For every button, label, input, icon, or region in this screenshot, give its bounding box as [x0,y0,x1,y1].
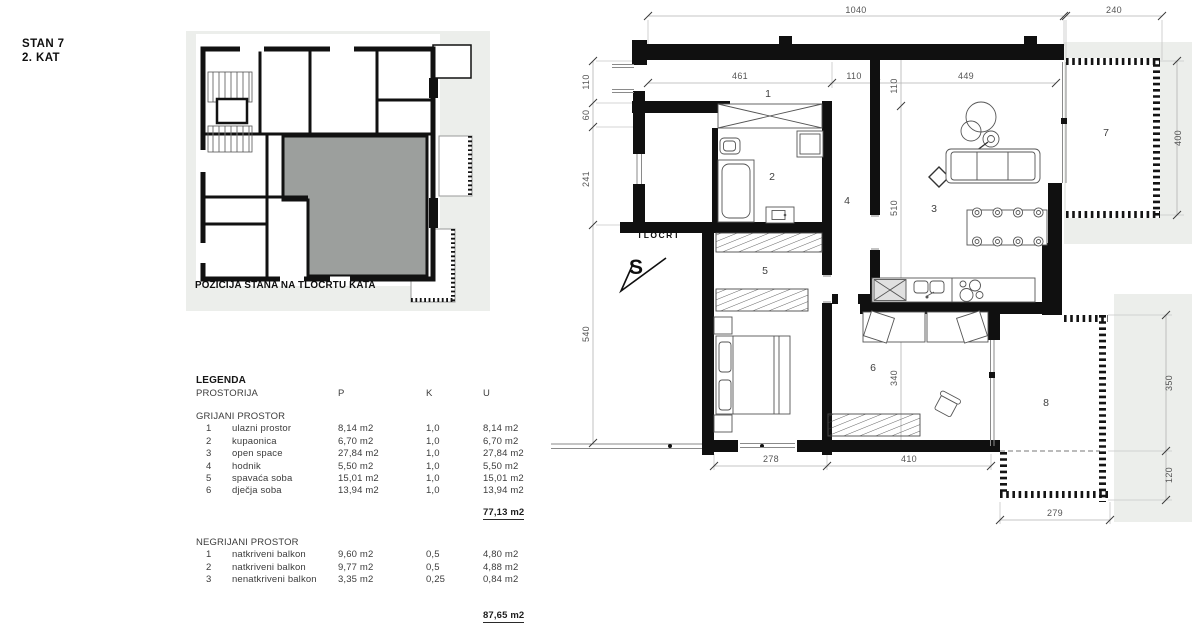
room-label-5: 5 [762,265,768,277]
dim-inner-left: 461 [732,71,748,81]
legend: LEGENDA PROSTORIJA P K U GRIJANI PROSTOR… [196,374,540,623]
kids-room-chair [933,390,962,418]
sofa [946,149,1040,183]
heated-section-title: GRIJANI PROSTOR [196,411,540,423]
mini-elevator [217,99,247,123]
apartment-title-line2: 2. KAT [22,52,64,66]
room-label-3: 3 [931,203,937,215]
dim-entry-height: 110 [889,78,899,93]
double-bed [714,317,790,432]
north-arrow [621,258,666,291]
dim-balcony8-h2: 120 [1164,467,1174,483]
dim-top-main: 1040 [845,5,866,15]
legend-row: 2 natkriveni balkon 9,77 m2 0,5 4,88 m2 [196,562,540,574]
legend-row: 3 open space 27,84 m2 1,0 27,84 m2 [196,448,540,460]
kids-room-beds [863,311,988,343]
wardrobe-hatch-corridor [716,233,822,252]
col-header-room: PROSTORIJA [196,387,338,400]
position-mini-plan [180,25,500,315]
unheated-section-title: NEGRIJANI PROSTOR [196,537,540,549]
legend-row: 1 natkriveni balkon 9,60 m2 0,5 4,80 m2 [196,549,540,561]
entry-closet [718,104,822,128]
room-label-8: 8 [1043,397,1049,409]
dim-left-3: 241 [581,171,591,187]
dim-balcony8-h1: 350 [1164,375,1174,391]
dim-left-2: 60 [581,110,591,121]
apartment-title: STAN 7 2. KAT [22,38,64,65]
room-label-1: 1 [765,88,771,100]
toilet [720,138,740,154]
room-label-4: 4 [844,195,850,207]
windows-and-glass [612,62,1067,448]
mini-plan-caption: POZICIJA STANA NA TLOCRTU KATA [195,280,376,291]
legend-row: 1 ulazni prostor 8,14 m2 1,0 8,14 m2 [196,423,540,435]
dim-bottom-right: 410 [901,454,917,464]
mini-stairs-lower [208,126,252,152]
dim-top-balcony: 240 [1106,5,1122,15]
col-header-k: K [426,387,483,400]
legend-row: 5 spavaća soba 15,01 m2 1,0 15,01 m2 [196,473,540,485]
dim-balcony7: 400 [1173,130,1183,146]
legend-row: 3 nenatkriveni balkon 3,35 m2 0,25 0,84 … [196,574,540,586]
room-label-6: 6 [870,362,876,374]
dim-bottom-left: 278 [763,454,779,464]
dim-inner-right: 449 [958,71,974,81]
bathtub [718,160,754,222]
legend-header-row: PROSTORIJA P K U [196,387,540,400]
wardrobe-hatch-bedroom [716,289,808,311]
dim-balcony8-w: 279 [1047,508,1063,518]
dim-left-4: 540 [581,326,591,342]
legend-row: 2 kupaonica 6,70 m2 1,0 6,70 m2 [196,436,540,448]
dim-inner-mid: 110 [846,71,861,81]
room-label-2: 2 [769,171,775,183]
mini-building [201,45,473,302]
legend-heading: LEGENDA [196,374,540,387]
dim-mid-upper: 510 [889,200,899,216]
col-header-u: U [483,387,540,400]
col-header-p: P [338,387,426,400]
heated-total: 77,13 m2 [483,507,524,520]
kitchen-counter [872,278,1035,302]
main-floor-plan: 1 2 3 4 5 6 7 8 1040 240 461 110 449 110… [548,0,1200,643]
dining-table [967,208,1047,246]
room-label-7: 7 [1103,127,1109,139]
shower [797,131,823,157]
wardrobe-hatch-kids-room [828,414,920,436]
bathroom-sink [766,207,794,223]
tlocrt-label: TLOCRT [637,230,680,240]
dim-left-1: 110 [581,74,591,89]
apartment-title-line1: STAN 7 [22,38,64,52]
mini-stairs-upper [208,72,252,102]
unheated-total: 87,65 m2 [483,610,524,623]
legend-row: 6 dječja soba 13,94 m2 1,0 13,94 m2 [196,485,540,497]
legend-row: 4 hodnik 5,50 m2 1,0 5,50 m2 [196,461,540,473]
dim-mid-lower: 340 [889,370,899,386]
